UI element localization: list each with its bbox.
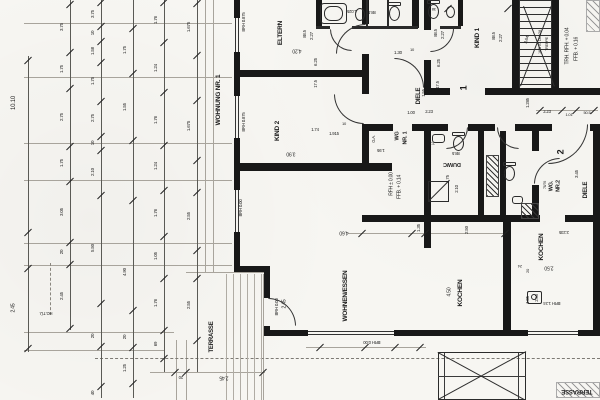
- dimension-text: 17.5: [436, 81, 440, 89]
- terrace-decking: [226, 274, 266, 400]
- dimension-text: 3.75: [459, 7, 464, 15]
- dimension-text: 88.5: [368, 10, 376, 14]
- wall-segment: [515, 124, 552, 131]
- wall-segment: [362, 124, 393, 131]
- dimension-tick: [504, 5, 512, 13]
- dimension-text: 2.55: [535, 294, 539, 302]
- room-label: DIELE: [416, 88, 422, 105]
- room-label: ELTERN: [278, 21, 285, 45]
- dimension-text: 2.45: [283, 300, 288, 309]
- dimension-text: 2.55: [187, 212, 192, 220]
- dimension-text: 6.25: [437, 59, 442, 67]
- dimension-text: BRH 0.00: [239, 199, 243, 216]
- room-label: TERRASSE: [209, 321, 215, 352]
- dimension-text: 4.90: [123, 268, 128, 276]
- extension-line: [205, 0, 206, 272]
- wall-segment: [412, 124, 448, 131]
- dimension-text: BRH 0.875: [242, 112, 246, 131]
- wall-segment: [560, 88, 600, 95]
- dimension-text: 2.45: [220, 375, 229, 380]
- dimension-text: 1.05: [154, 252, 159, 260]
- floor-plan-canvas: 10.102.453.751.752.751.753.05202.453.751…: [0, 0, 600, 400]
- wall-segment: [593, 131, 600, 331]
- wall-segment: [512, 0, 519, 88]
- dimension-text: 1.58: [91, 47, 96, 55]
- dimension-text: 1.75: [91, 77, 96, 85]
- dimension-text: 4.60: [340, 230, 349, 235]
- dimension-text: 10: [91, 31, 96, 36]
- dimension-text: 1.35: [417, 224, 422, 232]
- dimension-text: 3.75: [91, 10, 96, 18]
- dimension-text: G.A.: [372, 135, 376, 143]
- dimension-text: 1.76: [154, 16, 159, 24]
- room-label: KOCHEN: [539, 234, 546, 261]
- dimension-text: 1.55: [422, 89, 426, 97]
- wall-segment: [468, 124, 495, 131]
- room-label: KOCHEN: [458, 280, 465, 307]
- dimension-text: BRH 1.24: [543, 301, 560, 305]
- dimension-chain: [28, 56, 29, 352]
- dimension-text: TRH. RFH. + 0.04: [566, 28, 571, 65]
- dimension-text: 1.74: [311, 128, 319, 132]
- room-label: 2: [557, 150, 566, 155]
- dimension-text: 2.23: [543, 110, 551, 114]
- dimension-chain: [164, 0, 165, 372]
- dimension-text: 78/76: [544, 181, 548, 189]
- dimension-text: BRH 0.00: [363, 340, 380, 344]
- dimension-text: FFB. + 0.14: [398, 175, 403, 199]
- window: [235, 96, 239, 138]
- dimension-text: 1.285: [526, 98, 530, 108]
- dimension-text: 10: [91, 141, 96, 146]
- dimension-text: 4.50: [448, 288, 453, 297]
- partition-line: [316, 26, 330, 29]
- dimension-text: 3.05: [60, 208, 65, 216]
- dimension-text: 1.00: [407, 111, 415, 115]
- room-label: WG.: [549, 181, 555, 191]
- dimension-text: FFB. + 0.16: [575, 37, 580, 61]
- shaft-hatch: [521, 203, 539, 219]
- dimension-text: 88.5: [452, 151, 460, 155]
- room-label: NR.2: [556, 180, 562, 192]
- wall-segment: [362, 215, 540, 222]
- window: [308, 331, 394, 335]
- room-label: WC: [501, 172, 507, 181]
- dimension-text: 1.75: [60, 159, 65, 167]
- wall-segment: [394, 330, 528, 336]
- dimension-text: 3.90: [287, 151, 296, 156]
- wall-segment: [362, 54, 369, 94]
- dimension-text: 1.75: [446, 175, 450, 183]
- bathroom-fixture: [428, 181, 449, 202]
- window: [528, 331, 578, 335]
- dimension-text: 88.5: [303, 30, 307, 38]
- dimension-text: 20: [123, 335, 128, 340]
- shaft-hatch: [586, 0, 600, 32]
- door-swing-arc: [394, 58, 424, 88]
- dimension-text: 3.75: [60, 23, 65, 31]
- dimension-text: 6.25: [314, 58, 319, 66]
- wall-segment: [424, 88, 450, 95]
- dimension-text: 2.27: [441, 31, 446, 39]
- room-label: DU/WC: [443, 160, 461, 166]
- dimension-text: 69: [154, 342, 159, 347]
- room-label: DIELE: [583, 182, 589, 199]
- dimension-text: 1.76: [154, 116, 159, 124]
- bathroom-fixture: [389, 6, 400, 21]
- wall-segment: [532, 131, 539, 151]
- bathroom-fixture: [324, 6, 343, 21]
- dimension-text: 1.75: [60, 65, 65, 73]
- room-label: KIND 1: [475, 28, 482, 48]
- dimension-text: 1.675: [187, 22, 192, 32]
- wall-segment: [234, 70, 368, 77]
- wall-segment: [234, 163, 392, 171]
- extension-line: [24, 77, 232, 78]
- dimension-text: 3.45: [575, 170, 580, 178]
- dimension-text: 1.95: [377, 148, 385, 152]
- dimension-text: 20: [91, 334, 96, 339]
- dimension-text: 1.675: [187, 121, 192, 131]
- dimension-text: 20: [179, 375, 183, 379]
- extension-line: [24, 350, 164, 351]
- dimension-text: 1.55: [123, 103, 128, 111]
- dimension-text: 1.25: [123, 364, 128, 372]
- dimension-text: 2.27: [427, 141, 435, 145]
- wall-segment: [478, 131, 484, 215]
- dimension-text: 20: [526, 269, 530, 273]
- dimension-text: 2.10: [91, 168, 96, 176]
- dimension-text: 1.30: [394, 51, 402, 56]
- dimension-text: BRH 0.00: [275, 298, 279, 315]
- dimension-text: TREPPE: [546, 37, 550, 51]
- door-swing-arc: [330, 29, 352, 51]
- room-label: KIND 2: [275, 121, 282, 141]
- extension-line: [24, 332, 174, 333]
- dimension-text: 4.20: [293, 48, 302, 53]
- dimension-text: 50.5: [584, 111, 591, 115]
- door-dash-line: [50, 263, 51, 315]
- dimension-text: 2.50: [545, 265, 554, 270]
- dimension-text: 2.45: [60, 292, 65, 300]
- dimension-text: 20: [60, 250, 65, 255]
- extension-line: [24, 265, 232, 266]
- dimension-text: 88.5: [492, 32, 496, 40]
- dimension-text: 40: [91, 391, 96, 396]
- dimension-text: 10.10: [11, 96, 17, 110]
- room-label: WG: [395, 131, 401, 140]
- dimension-text: 5.50: [91, 244, 96, 252]
- dimension-text: 2.55: [187, 301, 192, 309]
- door-swing-arc: [446, 127, 468, 149]
- room-label: NR. 1: [403, 131, 409, 144]
- wall-segment: [412, 0, 419, 28]
- room-label: TERRASSE: [561, 388, 592, 394]
- dimension-text: 2.50: [465, 226, 470, 234]
- dimension-text: 2.75: [60, 113, 65, 121]
- extension-line: [24, 23, 232, 24]
- dimension-text: 88.5: [434, 29, 438, 37]
- room-label: WOHNUNG NR. 1: [216, 75, 223, 126]
- extension-line: [24, 180, 232, 181]
- dimension-text: 10: [342, 122, 346, 126]
- bathroom-fixture: [512, 196, 523, 204]
- wall-segment: [485, 88, 560, 95]
- wall-segment: [552, 0, 559, 88]
- dimension-text: 1.76: [154, 209, 159, 217]
- window: [235, 18, 239, 52]
- dimension-text: 38: [432, 7, 436, 11]
- dimension-text: 1.01: [566, 113, 573, 117]
- dimension-text: 2.23: [425, 110, 433, 114]
- dimension-text: 17.5: [314, 80, 318, 88]
- dimension-text: 2.27: [310, 32, 315, 40]
- dimension-text: 18 STG 18.3/28: [539, 30, 543, 54]
- dimension-text: 1.75: [123, 46, 128, 54]
- dimension-text: 1.24: [154, 162, 159, 170]
- shaft-hatch: [486, 155, 499, 197]
- dimension-text: 2.235: [559, 230, 569, 234]
- dimension-text: 2.27: [499, 34, 504, 42]
- room-label: WOHNEN/ESSEN: [343, 270, 350, 321]
- room-label: 1: [460, 86, 469, 91]
- wall-segment: [264, 330, 308, 336]
- dimension-text: 10: [410, 48, 414, 52]
- dimension-text: 2.75: [91, 114, 96, 122]
- dimension-text: 1.24: [154, 64, 159, 72]
- dimension-text: 2.45: [12, 304, 17, 313]
- dimension-text: RFH ± 0.00: [390, 172, 395, 196]
- dimension-text: BRH 0.875: [242, 12, 246, 31]
- door-swing-arc: [334, 94, 364, 124]
- dimension-text: 2.10: [455, 185, 459, 193]
- wall-segment: [424, 60, 431, 88]
- wall-segment: [234, 0, 240, 18]
- wall-segment: [264, 272, 270, 298]
- dimension-text: 1.76: [154, 299, 159, 307]
- wall-segment: [503, 222, 511, 330]
- wall-segment: [590, 124, 600, 131]
- dimension-text: 1.915: [329, 132, 339, 136]
- extension-line: [213, 0, 214, 272]
- dimension-text: HG.TÜ.: [40, 311, 53, 315]
- wall-segment: [424, 222, 431, 248]
- dimension-text: 1.05: [526, 296, 530, 304]
- dimension-text: 1.025: [347, 9, 357, 13]
- dimension-text: 24: [518, 264, 522, 268]
- extension-line: [24, 243, 232, 244]
